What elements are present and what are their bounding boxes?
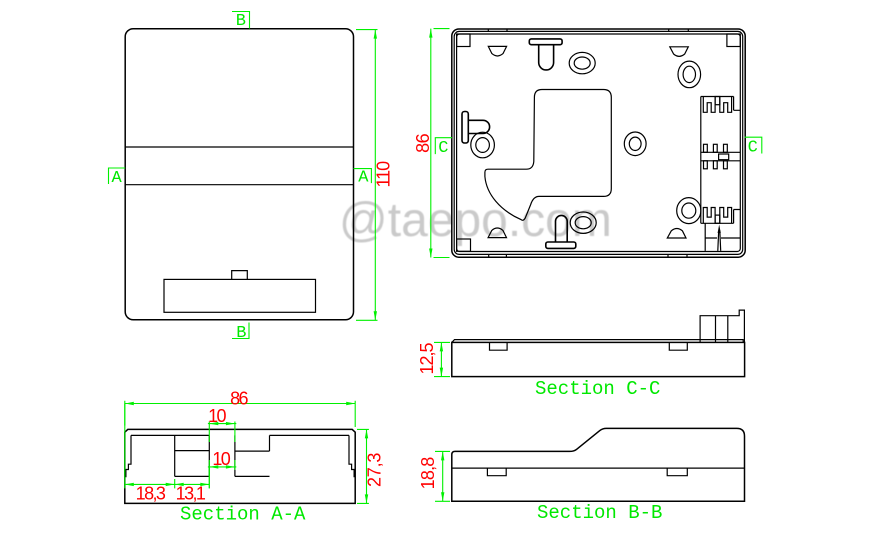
svg-text:A: A — [358, 169, 369, 188]
svg-text:C: C — [748, 139, 758, 158]
svg-text:Section B-B: Section B-B — [537, 502, 662, 524]
svg-text:18,8: 18,8 — [418, 457, 438, 490]
svg-text:Section C-C: Section C-C — [535, 378, 660, 400]
svg-text:12,5: 12,5 — [417, 343, 437, 375]
svg-text:C: C — [438, 139, 448, 158]
svg-text:A: A — [112, 169, 123, 188]
svg-text:B: B — [236, 12, 246, 31]
svg-text:27,3: 27,3 — [365, 453, 385, 487]
svg-text:86: 86 — [230, 389, 248, 409]
svg-text:Section A-A: Section A-A — [180, 504, 306, 526]
svg-text:B: B — [236, 324, 246, 343]
svg-text:10: 10 — [212, 449, 230, 469]
svg-text:10: 10 — [208, 406, 226, 426]
svg-text:13,1: 13,1 — [176, 483, 206, 503]
svg-text:18,3: 18,3 — [136, 483, 166, 503]
svg-text:110: 110 — [374, 161, 394, 188]
svg-text:86: 86 — [413, 133, 433, 153]
